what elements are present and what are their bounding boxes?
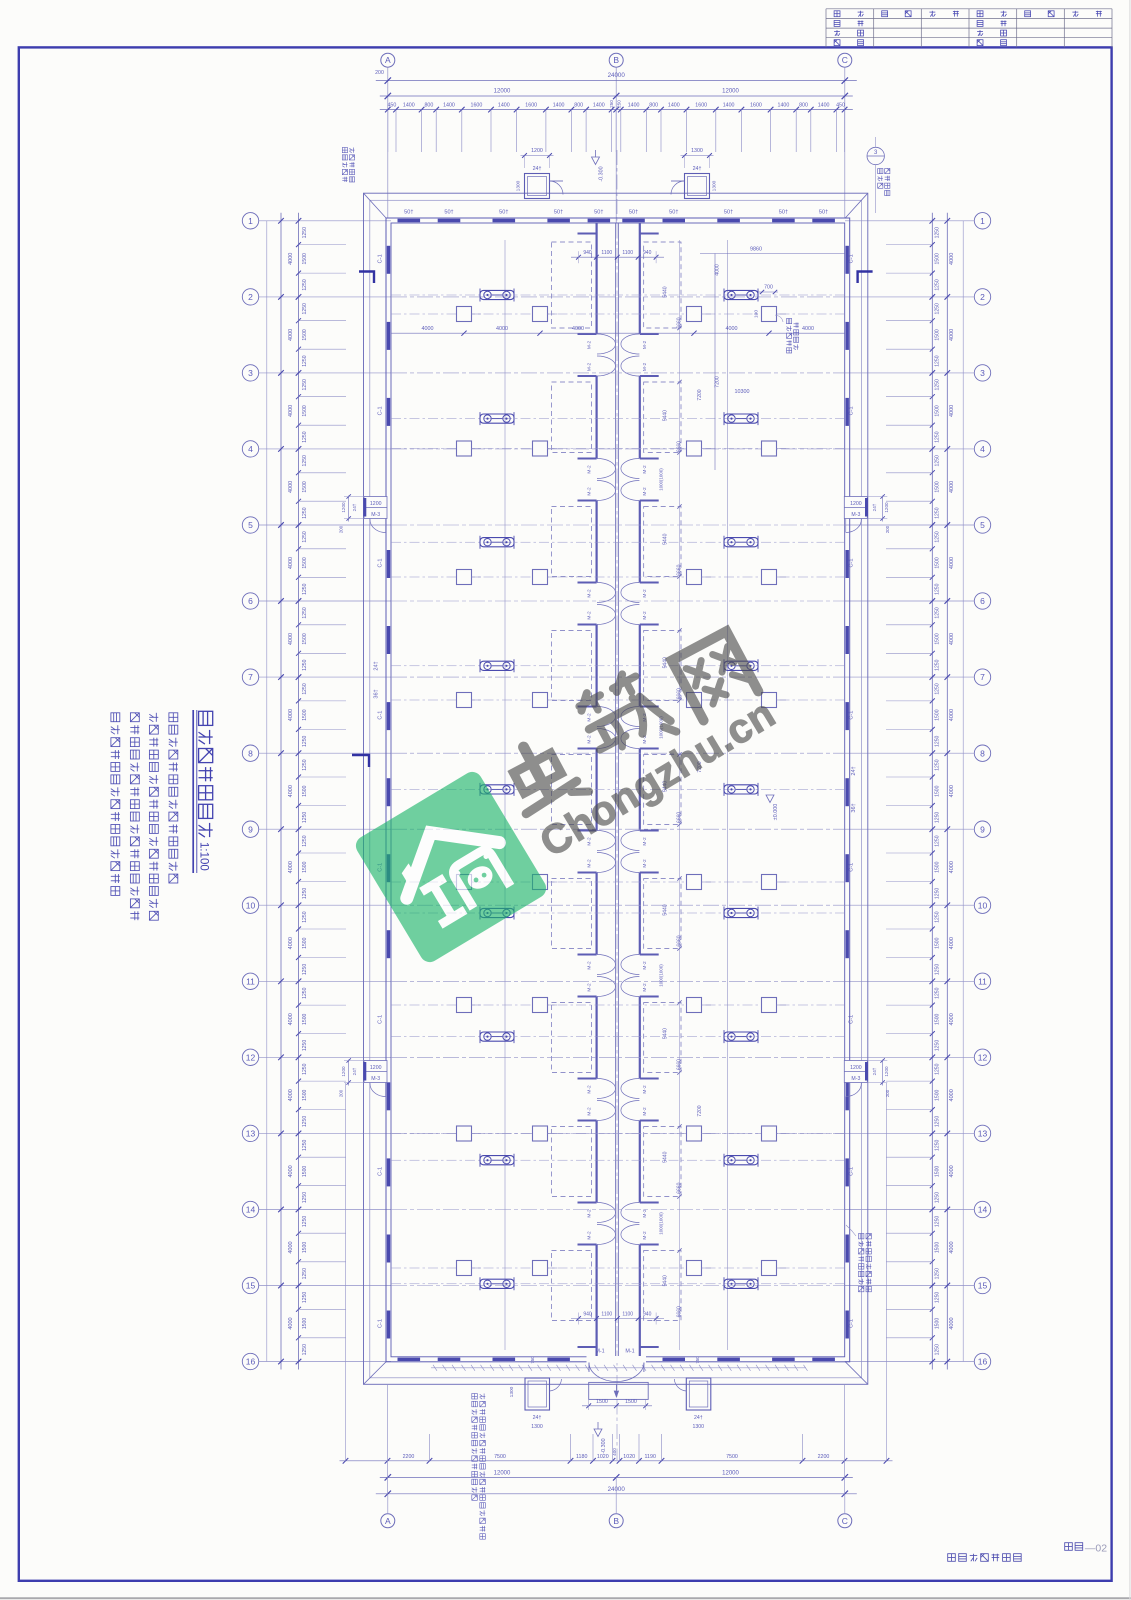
svg-text:M-2: M-2 (587, 983, 593, 992)
svg-text:16: 16 (246, 1357, 256, 1367)
svg-text:1200: 1200 (850, 1065, 862, 1071)
svg-text:4000: 4000 (949, 481, 955, 493)
svg-text:B: B (613, 1516, 619, 1526)
svg-text:700: 700 (764, 285, 773, 291)
svg-text:C-1: C-1 (849, 1167, 855, 1176)
svg-text:6: 6 (248, 596, 253, 606)
svg-text:1250: 1250 (935, 812, 941, 823)
svg-text:C-1: C-1 (849, 406, 855, 415)
svg-text:1250: 1250 (302, 1116, 308, 1127)
svg-text:6660: 6660 (677, 1059, 683, 1070)
svg-text:4000: 4000 (288, 633, 294, 645)
svg-text:1500: 1500 (302, 861, 308, 872)
svg-text:1250: 1250 (302, 683, 308, 694)
svg-text:M-2: M-2 (587, 487, 593, 496)
svg-text:1000(1000): 1000(1000) (659, 1212, 664, 1235)
svg-text:M-2: M-2 (642, 859, 648, 868)
svg-text:1500: 1500 (625, 1399, 637, 1405)
svg-text:940: 940 (643, 1312, 652, 1318)
svg-text:1500: 1500 (935, 1089, 941, 1100)
svg-text:1200: 1200 (850, 501, 862, 507)
svg-text:1400: 1400 (593, 102, 605, 108)
svg-text:1250: 1250 (935, 1139, 941, 1150)
svg-text:10: 10 (246, 900, 256, 910)
svg-text:50†: 50† (779, 210, 788, 216)
svg-text:24†: 24† (533, 1415, 542, 1421)
svg-text:1500: 1500 (935, 329, 941, 340)
svg-text:1250: 1250 (935, 987, 941, 998)
svg-text:1500: 1500 (935, 633, 941, 644)
svg-text:7500: 7500 (494, 1454, 506, 1460)
svg-text:1250: 1250 (935, 1063, 941, 1074)
svg-text:4000: 4000 (726, 326, 738, 332)
svg-text:8: 8 (248, 748, 253, 758)
svg-text:6660: 6660 (677, 935, 683, 946)
svg-text:1250: 1250 (935, 607, 941, 618)
svg-text:1500: 1500 (302, 1089, 308, 1100)
svg-text:200: 200 (885, 525, 890, 533)
svg-text:800: 800 (424, 102, 433, 108)
svg-text:M-2: M-2 (642, 487, 648, 496)
svg-text:4000: 4000 (288, 1317, 294, 1329)
svg-text:1500: 1500 (935, 709, 941, 720)
svg-text:5: 5 (248, 520, 253, 530)
svg-text:800: 800 (574, 102, 583, 108)
svg-text:C-1: C-1 (849, 1015, 855, 1024)
svg-text:A: A (385, 1516, 391, 1526)
svg-text:11: 11 (246, 976, 255, 986)
svg-text:1500: 1500 (935, 1166, 941, 1177)
svg-text:C-1: C-1 (377, 254, 383, 263)
svg-text:M-2: M-2 (642, 961, 648, 970)
svg-text:1200: 1200 (370, 501, 382, 507)
svg-text:4000: 4000 (422, 326, 434, 332)
svg-text:1250: 1250 (302, 531, 308, 542)
svg-text:C-1: C-1 (377, 1015, 383, 1024)
svg-text:1250: 1250 (302, 835, 308, 846)
svg-text:12000: 12000 (494, 1470, 511, 1476)
svg-text:M-3: M-3 (371, 1076, 380, 1082)
svg-text:10: 10 (978, 900, 988, 910)
svg-text:1300: 1300 (691, 148, 703, 154)
svg-text:2200: 2200 (403, 1454, 415, 1460)
svg-text:1400: 1400 (403, 102, 415, 108)
svg-text:5440: 5440 (663, 1275, 669, 1286)
svg-text:3: 3 (248, 368, 253, 378)
svg-text:4000: 4000 (949, 253, 955, 265)
svg-text:C: C (842, 1516, 848, 1526)
svg-text:1250: 1250 (935, 455, 941, 466)
svg-text:1250: 1250 (302, 455, 308, 466)
svg-text:1400: 1400 (778, 102, 790, 108)
svg-text:1500: 1500 (302, 633, 308, 644)
svg-text:1250: 1250 (935, 1216, 941, 1227)
svg-text:9860: 9860 (750, 247, 762, 253)
svg-text:4000: 4000 (288, 861, 294, 873)
svg-text:M-2: M-2 (587, 589, 593, 598)
svg-text:1500: 1500 (302, 405, 308, 416)
svg-text:4000: 4000 (949, 785, 955, 797)
svg-text:1500: 1500 (935, 1242, 941, 1253)
svg-text:24†: 24† (374, 661, 380, 670)
svg-text:2: 2 (980, 292, 985, 302)
svg-text:1250: 1250 (935, 431, 941, 442)
svg-text:1500: 1500 (302, 481, 308, 492)
svg-text:M-2: M-2 (642, 837, 648, 846)
svg-text:4000: 4000 (288, 329, 294, 341)
svg-text:1200: 1200 (884, 502, 889, 513)
svg-text:100: 100 (754, 310, 760, 318)
svg-text:1200: 1200 (341, 502, 346, 513)
svg-text:250: 250 (609, 100, 614, 108)
svg-text:1500: 1500 (935, 557, 941, 568)
svg-text:4000: 4000 (288, 1165, 294, 1177)
svg-text:1400: 1400 (553, 102, 565, 108)
svg-text:C-1: C-1 (849, 1319, 855, 1328)
svg-text:4000: 4000 (288, 481, 294, 493)
svg-text:C-1: C-1 (849, 711, 855, 720)
svg-text:1250: 1250 (302, 812, 308, 823)
svg-text:M-2: M-2 (642, 465, 648, 474)
svg-text:C-1: C-1 (849, 863, 855, 872)
svg-text:1250: 1250 (935, 911, 941, 922)
svg-text:1:100: 1:100 (198, 842, 210, 871)
svg-text:4000: 4000 (949, 709, 955, 721)
svg-text:4000: 4000 (949, 1013, 955, 1025)
svg-text:4000: 4000 (288, 1013, 294, 1025)
svg-text:1500: 1500 (302, 253, 308, 264)
svg-text:6660: 6660 (677, 441, 683, 452)
svg-text:1500: 1500 (935, 405, 941, 416)
svg-text:1180: 1180 (576, 1454, 587, 1460)
svg-text:1500: 1500 (302, 1013, 308, 1024)
svg-text:1250: 1250 (935, 507, 941, 518)
svg-text:M-2: M-2 (642, 341, 648, 350)
svg-text:5440: 5440 (663, 286, 669, 297)
svg-text:1250: 1250 (935, 303, 941, 314)
svg-text:C-1: C-1 (377, 406, 383, 415)
svg-text:4000: 4000 (949, 405, 955, 417)
svg-text:1250: 1250 (935, 531, 941, 542)
svg-text:7200: 7200 (715, 376, 721, 388)
svg-text:1250: 1250 (935, 759, 941, 770)
svg-text:200: 200 (375, 70, 384, 76)
svg-text:1400: 1400 (818, 102, 830, 108)
svg-text:1250: 1250 (302, 507, 308, 518)
svg-text:7500: 7500 (726, 1454, 738, 1460)
svg-text:1250: 1250 (302, 583, 308, 594)
svg-text:1250: 1250 (935, 227, 941, 238)
svg-text:M-2: M-2 (587, 1107, 593, 1116)
svg-text:1250: 1250 (302, 1063, 308, 1074)
svg-text:1100: 1100 (601, 1312, 612, 1318)
svg-text:1190: 1190 (645, 1454, 656, 1460)
svg-text:200: 200 (339, 1089, 344, 1097)
svg-text:24†: 24† (872, 503, 877, 511)
svg-text:1400: 1400 (628, 102, 640, 108)
svg-text:1250: 1250 (302, 911, 308, 922)
svg-text:1500: 1500 (302, 1242, 308, 1253)
svg-text:A: A (385, 55, 391, 65)
svg-text:1250: 1250 (302, 1216, 308, 1227)
svg-text:1500: 1500 (302, 329, 308, 340)
svg-text:7: 7 (248, 672, 253, 682)
svg-text:1250: 1250 (302, 607, 308, 618)
svg-text:6660: 6660 (677, 317, 683, 328)
svg-text:1100: 1100 (601, 250, 612, 256)
svg-text:1500: 1500 (302, 557, 308, 568)
svg-text:800: 800 (649, 102, 658, 108)
svg-text:1500: 1500 (935, 253, 941, 264)
svg-text:1250: 1250 (935, 279, 941, 290)
svg-text:16: 16 (978, 1357, 988, 1367)
svg-text:5440: 5440 (663, 533, 669, 544)
svg-text:1400: 1400 (668, 102, 680, 108)
svg-text:1300: 1300 (693, 1424, 705, 1430)
svg-text:1500: 1500 (935, 785, 941, 796)
svg-text:24†: 24† (872, 1067, 877, 1075)
svg-text:2200: 2200 (818, 1454, 830, 1460)
svg-text:1250: 1250 (935, 683, 941, 694)
svg-text:750: 750 (530, 1356, 535, 1364)
svg-text:50†: 50† (629, 210, 638, 216)
svg-text:M-2: M-2 (642, 1107, 648, 1116)
svg-text:M-3: M-3 (851, 512, 860, 518)
svg-text:6660: 6660 (677, 564, 683, 575)
svg-text:1200: 1200 (370, 1065, 382, 1071)
svg-text:4000: 4000 (949, 1089, 955, 1101)
svg-text:1200: 1200 (531, 148, 543, 154)
svg-text:5440: 5440 (663, 1028, 669, 1039)
svg-text:200: 200 (339, 525, 344, 533)
svg-text:4000: 4000 (496, 326, 508, 332)
svg-text:±0.000: ±0.000 (773, 804, 779, 820)
svg-text:1250: 1250 (302, 1292, 308, 1303)
svg-text:1250: 1250 (935, 659, 941, 670)
svg-text:7200: 7200 (697, 1105, 703, 1116)
svg-text:1500: 1500 (596, 1399, 608, 1405)
svg-text:4000: 4000 (949, 1241, 955, 1253)
svg-text:M-2: M-2 (642, 1231, 648, 1240)
svg-text:1250: 1250 (302, 735, 308, 746)
svg-text:M-2: M-2 (642, 611, 648, 620)
svg-text:-0.300: -0.300 (601, 1438, 607, 1453)
svg-text:1000(1000): 1000(1000) (659, 468, 664, 491)
svg-text:1250: 1250 (935, 1268, 941, 1279)
svg-text:M-2: M-2 (587, 1209, 593, 1218)
svg-text:1250: 1250 (302, 1192, 308, 1203)
svg-text:12000: 12000 (722, 1470, 739, 1476)
svg-text:1250: 1250 (302, 355, 308, 366)
svg-text:50†: 50† (669, 210, 678, 216)
svg-text:B: B (613, 55, 619, 65)
svg-text:4000: 4000 (949, 633, 955, 645)
svg-text:-0.300: -0.300 (599, 166, 605, 181)
svg-text:4: 4 (980, 444, 985, 454)
svg-text:1250: 1250 (935, 379, 941, 390)
svg-text:1250: 1250 (935, 583, 941, 594)
svg-text:M-2: M-2 (587, 735, 593, 744)
svg-text:13: 13 (246, 1129, 256, 1139)
svg-text:13: 13 (978, 1129, 988, 1139)
svg-text:1250: 1250 (302, 987, 308, 998)
svg-text:940: 940 (583, 1312, 592, 1318)
svg-text:6660: 6660 (677, 1306, 683, 1317)
svg-text:8: 8 (980, 748, 985, 758)
svg-text:M-2: M-2 (587, 859, 593, 868)
svg-text:4000: 4000 (802, 326, 814, 332)
svg-text:1250: 1250 (302, 888, 308, 899)
svg-text:5440: 5440 (663, 904, 669, 915)
svg-text:1250: 1250 (935, 1292, 941, 1303)
svg-text:1500: 1500 (302, 937, 308, 948)
svg-text:4000: 4000 (288, 937, 294, 949)
svg-text:24†: 24† (694, 1415, 703, 1421)
svg-text:C-1: C-1 (377, 558, 383, 567)
svg-text:3: 3 (980, 368, 985, 378)
svg-text:1500: 1500 (935, 481, 941, 492)
svg-text:M-2: M-2 (587, 363, 593, 372)
svg-text:1250: 1250 (302, 1040, 308, 1051)
svg-text:24†: 24† (533, 166, 542, 172)
svg-text:1300: 1300 (712, 180, 718, 191)
svg-text:12000: 12000 (494, 89, 511, 95)
svg-text:1500: 1500 (935, 1013, 941, 1024)
svg-text:1250: 1250 (302, 759, 308, 770)
svg-text:1600: 1600 (525, 102, 537, 108)
svg-text:50†: 50† (724, 210, 733, 216)
svg-text:C: C (842, 55, 848, 65)
svg-text:C-1: C-1 (849, 558, 855, 567)
svg-text:50†: 50† (554, 210, 563, 216)
svg-text:1250: 1250 (302, 227, 308, 238)
svg-text:1500: 1500 (935, 937, 941, 948)
svg-text:4000: 4000 (288, 405, 294, 417)
svg-text:M-2: M-2 (642, 1085, 648, 1094)
svg-text:36†: 36† (374, 689, 380, 698)
svg-text:1250: 1250 (935, 355, 941, 366)
svg-text:1250: 1250 (302, 1344, 308, 1355)
svg-text:1250: 1250 (302, 279, 308, 290)
svg-text:1400: 1400 (443, 102, 455, 108)
svg-text:9: 9 (980, 824, 985, 834)
svg-text:M-2: M-2 (642, 1209, 648, 1218)
svg-text:1250: 1250 (302, 659, 308, 670)
svg-text:1100: 1100 (622, 1312, 633, 1318)
svg-text:1250: 1250 (935, 1116, 941, 1127)
svg-text:12: 12 (978, 1052, 988, 1062)
svg-text:4000: 4000 (288, 709, 294, 721)
svg-text:4000: 4000 (288, 1241, 294, 1253)
svg-text:1500: 1500 (302, 1166, 308, 1177)
svg-text:4000: 4000 (572, 326, 584, 332)
svg-text:10300: 10300 (735, 389, 750, 395)
svg-text:4000: 4000 (288, 557, 294, 569)
svg-text:1400: 1400 (498, 102, 510, 108)
svg-text:1250: 1250 (302, 964, 308, 975)
svg-text:4000: 4000 (288, 785, 294, 797)
svg-text:1300: 1300 (516, 180, 522, 191)
svg-text:1200: 1200 (341, 1066, 346, 1077)
svg-text:9: 9 (248, 824, 253, 834)
svg-text:11: 11 (978, 976, 987, 986)
svg-text:14: 14 (246, 1205, 256, 1215)
svg-text:750: 750 (695, 1356, 700, 1364)
svg-text:7200: 7200 (697, 389, 703, 400)
svg-text:1600: 1600 (695, 102, 707, 108)
svg-text:200: 200 (885, 1089, 890, 1097)
svg-text:—02: —02 (1085, 1543, 1107, 1555)
svg-text:7: 7 (980, 672, 985, 682)
svg-text:450: 450 (836, 102, 845, 108)
svg-text:4000: 4000 (949, 329, 955, 341)
svg-text:6660: 6660 (677, 812, 683, 823)
svg-text:M-1: M-1 (625, 1349, 634, 1355)
svg-text:4000: 4000 (949, 861, 955, 873)
svg-text:6: 6 (980, 596, 985, 606)
svg-text:1300: 1300 (531, 1424, 543, 1430)
svg-text:1400: 1400 (723, 102, 735, 108)
svg-text:1020: 1020 (597, 1454, 609, 1460)
svg-text:15: 15 (246, 1281, 256, 1291)
svg-text:C-1: C-1 (849, 254, 855, 263)
svg-text:5440: 5440 (663, 410, 669, 421)
svg-text:1500: 1500 (935, 1318, 941, 1329)
svg-text:36†: 36† (851, 803, 857, 812)
svg-text:1000(1000): 1000(1000) (659, 964, 664, 987)
svg-text:C-1: C-1 (377, 1167, 383, 1176)
svg-text:M-2: M-2 (587, 611, 593, 620)
svg-text:1500: 1500 (302, 785, 308, 796)
svg-text:1250: 1250 (302, 379, 308, 390)
svg-text:2: 2 (248, 292, 253, 302)
svg-text:M-2: M-2 (642, 363, 648, 372)
svg-text:M-3: M-3 (371, 512, 380, 518)
svg-text:24†: 24† (693, 166, 702, 172)
svg-text:800: 800 (799, 102, 808, 108)
svg-text:1250: 1250 (935, 1192, 941, 1203)
svg-text:1250: 1250 (935, 1344, 941, 1355)
svg-text:1250: 1250 (935, 964, 941, 975)
svg-text:50†: 50† (594, 210, 603, 216)
svg-text:450: 450 (387, 102, 396, 108)
svg-text:4000: 4000 (949, 1165, 955, 1177)
svg-text:M-2: M-2 (587, 341, 593, 350)
svg-text:24†: 24† (352, 503, 357, 511)
svg-text:24000: 24000 (608, 72, 626, 79)
svg-text:1: 1 (980, 216, 985, 226)
svg-text:1250: 1250 (302, 1139, 308, 1150)
svg-text:940: 940 (583, 250, 592, 256)
svg-text:M-2: M-2 (587, 465, 593, 474)
svg-text:1250: 1250 (935, 1040, 941, 1051)
svg-text:1250: 1250 (935, 888, 941, 899)
svg-text:M-2: M-2 (587, 713, 593, 722)
svg-text:M-1: M-1 (595, 1349, 604, 1355)
svg-text:14: 14 (978, 1205, 988, 1215)
svg-text:1600: 1600 (471, 102, 483, 108)
svg-text:M-2: M-2 (587, 1085, 593, 1094)
svg-text:24†: 24† (352, 1067, 357, 1075)
svg-text:C-1: C-1 (377, 1319, 383, 1328)
svg-text:50†: 50† (819, 210, 828, 216)
svg-text:1020: 1020 (623, 1454, 635, 1460)
svg-text:1500: 1500 (302, 709, 308, 720)
svg-text:1500: 1500 (935, 861, 941, 872)
svg-text:250: 250 (616, 100, 621, 108)
svg-text:1250: 1250 (302, 1268, 308, 1279)
svg-text:940: 940 (643, 250, 652, 256)
